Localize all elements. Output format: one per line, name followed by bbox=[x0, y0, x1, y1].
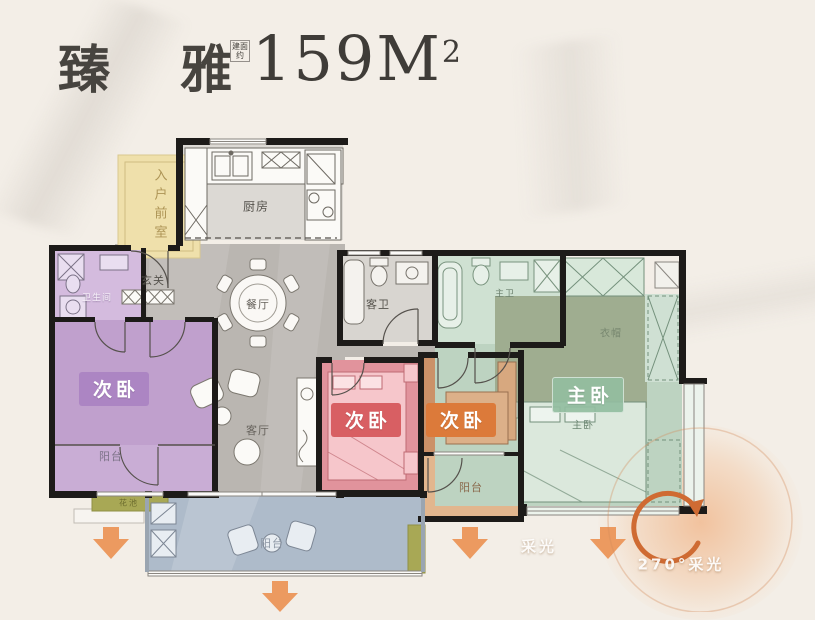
area-value: 159M2 bbox=[252, 22, 463, 95]
room-label-foyer: 玄关 bbox=[141, 272, 165, 288]
room-label-balcony-right: 阳台 bbox=[459, 479, 483, 495]
area-note: 建面约 bbox=[230, 40, 250, 62]
room-label-kitchen: 厨房 bbox=[243, 198, 269, 215]
area-superscript: 2 bbox=[442, 35, 463, 70]
room-badge-bedroom-right: 次卧 bbox=[426, 403, 496, 437]
area-number: 159M bbox=[252, 22, 442, 95]
room-label-balcony-main: 阳台 bbox=[260, 535, 284, 551]
down-arrow-icon bbox=[590, 527, 626, 559]
room-label-guest-bath: 客卫 bbox=[366, 296, 390, 312]
room-badge-bedroom-mid: 次卧 bbox=[331, 403, 401, 437]
down-arrow-icon bbox=[452, 527, 488, 559]
room-badge-bedroom-left: 次卧 bbox=[79, 372, 149, 406]
room-label-dining: 餐厅 bbox=[246, 296, 270, 312]
down-arrow-icon bbox=[262, 581, 298, 612]
room-badge-master: 主卧 bbox=[552, 377, 624, 413]
room-label-planter-left: 花池 bbox=[119, 498, 139, 509]
down-arrow-icon bbox=[93, 527, 129, 559]
room-label-master-bed: 主卧 bbox=[572, 417, 594, 432]
floorplan-page: 臻 雅 建面约 159M2 入户前室 厨房 玄关 餐厅 客厅 卫生间 次卧 阳台… bbox=[0, 0, 815, 612]
daylight-label: 采光 bbox=[521, 536, 557, 557]
plan-title: 臻 雅 bbox=[58, 28, 258, 103]
room-label-cloakroom: 衣帽 bbox=[600, 325, 622, 340]
room-label-living: 客厅 bbox=[246, 422, 270, 438]
room-label-master-bath: 主卫 bbox=[495, 287, 515, 300]
room-label-entry: 入户前室 bbox=[150, 168, 169, 244]
room-label-balcony-left: 阳台 bbox=[99, 448, 123, 464]
room-label-bath-left: 卫生间 bbox=[82, 291, 112, 304]
daylight-270-label: 270°采光 bbox=[638, 554, 725, 575]
